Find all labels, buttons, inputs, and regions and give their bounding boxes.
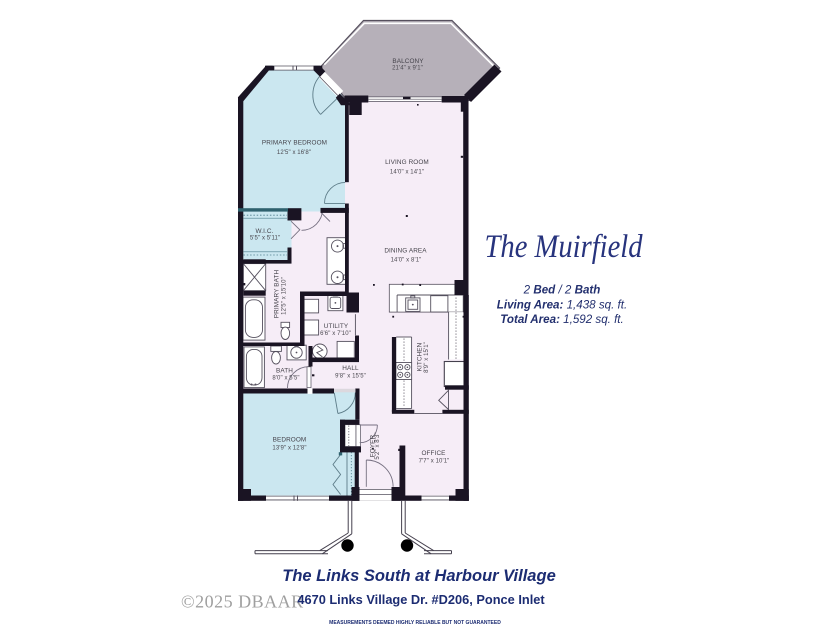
svg-text:6'6" x 7'10": 6'6" x 7'10" (320, 331, 351, 337)
svg-text:14'0" x 14'1": 14'0" x 14'1" (390, 169, 424, 175)
svg-text:LIVING ROOM: LIVING ROOM (385, 159, 429, 166)
svg-text:7'7" x 10'1": 7'7" x 10'1" (419, 458, 450, 464)
svg-text:13'9" x 12'8": 13'9" x 12'8" (272, 445, 306, 451)
svg-text:The Muirfield: The Muirfield (485, 229, 643, 265)
svg-text:UTILITY: UTILITY (324, 323, 349, 330)
svg-text:2 Bed / 2 Bath: 2 Bed / 2 Bath (523, 284, 601, 297)
svg-text:©2025 DBAAR: ©2025 DBAAR (181, 592, 304, 612)
svg-text:DINING AREA: DINING AREA (384, 248, 427, 255)
svg-text:The Links South at Harbour Vil: The Links South at Harbour Village (282, 567, 556, 585)
svg-text:BEDROOM: BEDROOM (273, 437, 307, 444)
svg-text:BALCONY: BALCONY (392, 58, 424, 65)
svg-text:MEASUREMENTS DEEMED HIGHLY REL: MEASUREMENTS DEEMED HIGHLY RELIABLE BUT … (329, 620, 501, 626)
svg-text:BATH: BATH (276, 368, 293, 375)
svg-text:OFFICE: OFFICE (421, 450, 445, 457)
svg-text:W.I.C.: W.I.C. (256, 228, 274, 235)
svg-text:5'5" x 5'11": 5'5" x 5'11" (250, 235, 280, 241)
svg-text:PRIMARY BATH: PRIMARY BATH (274, 270, 281, 319)
svg-text:9'8" x 15'5": 9'8" x 15'5" (335, 373, 366, 379)
svg-text:HALL: HALL (342, 365, 359, 372)
svg-text:8'0" x 5'5": 8'0" x 5'5" (272, 376, 299, 382)
svg-text:21'4" x 9'1": 21'4" x 9'1" (392, 66, 423, 72)
svg-text:12'5" x 15'10": 12'5" x 15'10" (282, 277, 288, 315)
svg-text:14'0" x 8'1": 14'0" x 8'1" (391, 257, 422, 263)
svg-text:4670 Links Village Dr. #D206,: 4670 Links Village Dr. #D206, Ponce Inle… (297, 592, 545, 607)
svg-text:Living Area: 1,438 sq. ft.: Living Area: 1,438 sq. ft. (497, 299, 627, 312)
svg-text:8'9" x 15'1": 8'9" x 15'1" (424, 342, 430, 373)
svg-text:5'2" x 8'3": 5'2" x 8'3" (375, 432, 381, 459)
svg-text:Total Area: 1,592 sq. ft.: Total Area: 1,592 sq. ft. (500, 313, 624, 326)
svg-text:PRIMARY BEDROOM: PRIMARY BEDROOM (262, 140, 327, 147)
svg-text:KITCHEN: KITCHEN (417, 342, 424, 371)
svg-text:12'5" x 16'8": 12'5" x 16'8" (277, 150, 311, 156)
